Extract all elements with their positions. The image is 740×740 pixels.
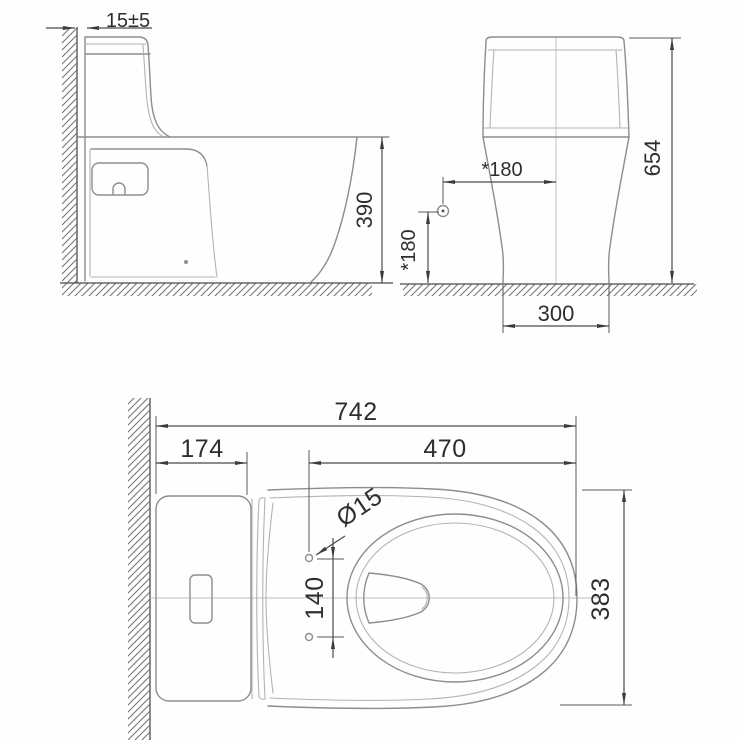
front-water-supply-point	[438, 206, 449, 217]
dim-front-supply-height: *180	[398, 212, 439, 283]
top-flush-button	[190, 575, 212, 623]
dim-front-total-height: 654	[629, 38, 681, 283]
dim-front-supply-offset-label: *180	[481, 159, 522, 181]
front-view: *180 *180 654 300	[398, 36, 697, 333]
dim-top-bowl-width-label: 383	[587, 577, 615, 620]
dim-side-seat-height-label: 390	[352, 192, 377, 229]
dim-top-bolt-to-front: 470	[309, 435, 576, 552]
toilet-dimension-drawing: 15±5 390	[0, 0, 740, 740]
dim-top-bowl-width: 383	[560, 490, 632, 705]
dim-top-tank-depth-label: 174	[180, 435, 223, 463]
side-floor-hatch	[62, 283, 372, 296]
top-bolt-hole-upper	[306, 555, 313, 562]
dim-top-bolt-to-front-label: 470	[423, 435, 466, 463]
front-floor-hatch	[403, 284, 697, 296]
side-drain-dot	[184, 260, 188, 264]
side-view: 15±5 390	[46, 10, 393, 296]
dim-top-tank-depth: 174	[156, 435, 247, 495]
side-wall-hatch	[62, 27, 77, 283]
dim-side-wall-gap: 15±5	[46, 10, 152, 32]
dim-front-base-width-label: 300	[538, 301, 575, 326]
dim-front-supply-height-label: *180	[398, 229, 420, 270]
top-tank	[156, 496, 251, 701]
side-fixture-outline	[78, 37, 389, 282]
top-view: 742 174 470 Ø15 140 383	[128, 398, 632, 740]
dim-top-bolt-diameter: Ø15	[316, 482, 388, 555]
dim-front-supply-offset: *180	[443, 159, 556, 204]
dim-top-bolt-diameter-label: Ø15	[331, 482, 387, 532]
top-bolt-hole-lower	[306, 634, 313, 641]
side-recess-panel	[92, 163, 148, 195]
technical-drawing-page: 15±5 390	[0, 0, 740, 740]
top-wall-hatch	[128, 398, 150, 740]
side-keyhole-detail	[113, 183, 125, 195]
dim-top-total-depth-label: 742	[334, 398, 377, 426]
dim-front-total-height-label: 654	[640, 140, 665, 177]
dim-side-seat-height: 390	[352, 137, 382, 283]
dim-side-wall-gap-label: 15±5	[106, 10, 150, 32]
dim-top-bolt-spacing-label: 140	[301, 576, 329, 619]
